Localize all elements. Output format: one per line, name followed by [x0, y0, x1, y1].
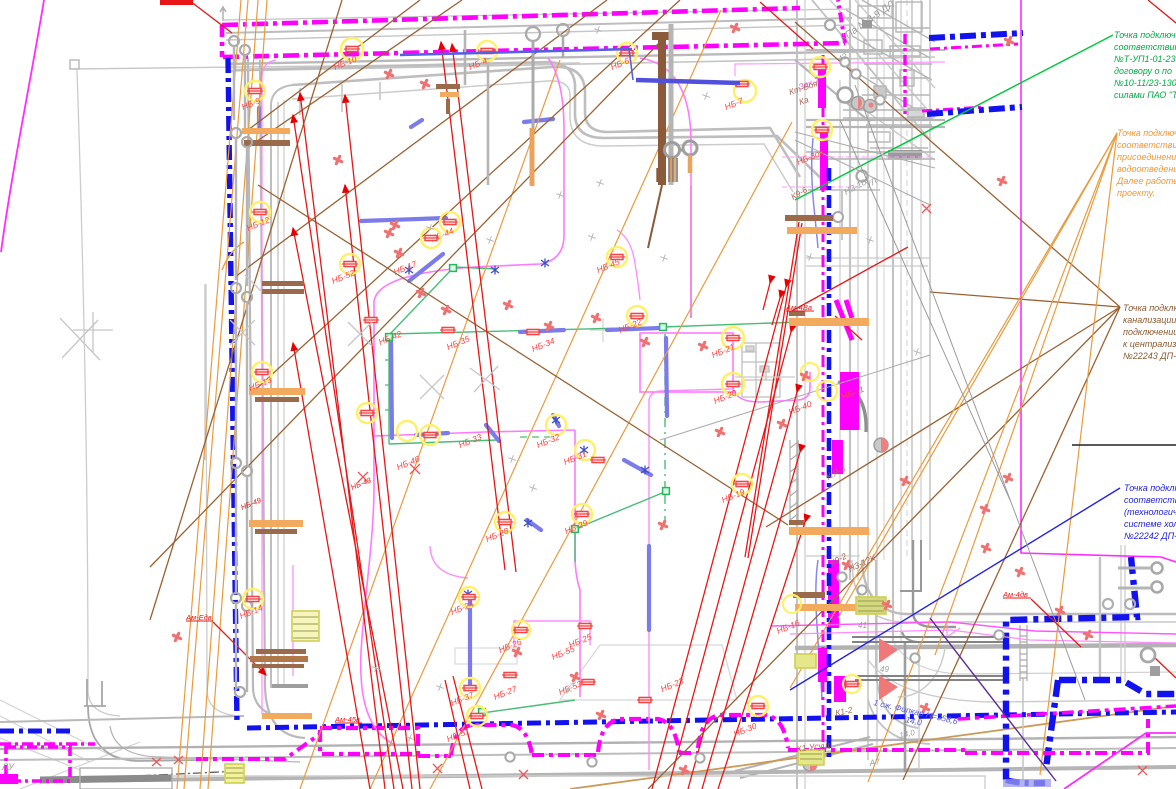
svg-text:Точка подклк: Точка подклк [1124, 483, 1176, 493]
svg-text:А7: А7 [868, 756, 881, 768]
svg-text:49: 49 [880, 665, 889, 674]
svg-text:№22242 ДП-: №22242 ДП- [1124, 531, 1176, 541]
svg-text:соответстви: соответстви [1124, 495, 1176, 505]
svg-text:подключении: подключении [1123, 327, 1176, 337]
svg-text:договору о по: договору о по [1114, 66, 1172, 76]
svg-text:системе холо: системе холо [1124, 519, 1176, 529]
svg-text:силами ПАО "Т: силами ПАО "Т [1114, 90, 1176, 100]
svg-text:канализации: канализации [1123, 315, 1176, 325]
svg-text:№22243 ДП-: №22243 ДП- [1123, 351, 1176, 361]
svg-text:ЛУ: ЛУ [1, 762, 15, 772]
svg-text:присоединении: присоединении [1117, 152, 1176, 162]
svg-text:к централиз: к централиз [1123, 339, 1176, 349]
svg-text:проекту.: проекту. [1117, 188, 1155, 198]
svg-text:Точка подключ: Точка подключ [1117, 128, 1176, 138]
svg-text:Точка подклк: Точка подклк [1123, 303, 1176, 313]
svg-text:водоотведени: водоотведени [1117, 164, 1176, 174]
svg-text:№10-11/23-130: №10-11/23-130 [1114, 78, 1176, 88]
svg-text:41: 41 [858, 621, 867, 630]
svg-text:Точка подключ: Точка подключ [1114, 30, 1176, 40]
svg-text:(технологиче: (технологиче [1124, 507, 1176, 517]
svg-text:Далее работь: Далее работь [1116, 176, 1176, 186]
svg-text:№Т-УП1-01-23: №Т-УП1-01-23 [1114, 54, 1176, 64]
svg-text:соответствии: соответствии [1114, 42, 1176, 52]
svg-text:соответствии: соответствии [1117, 140, 1176, 150]
